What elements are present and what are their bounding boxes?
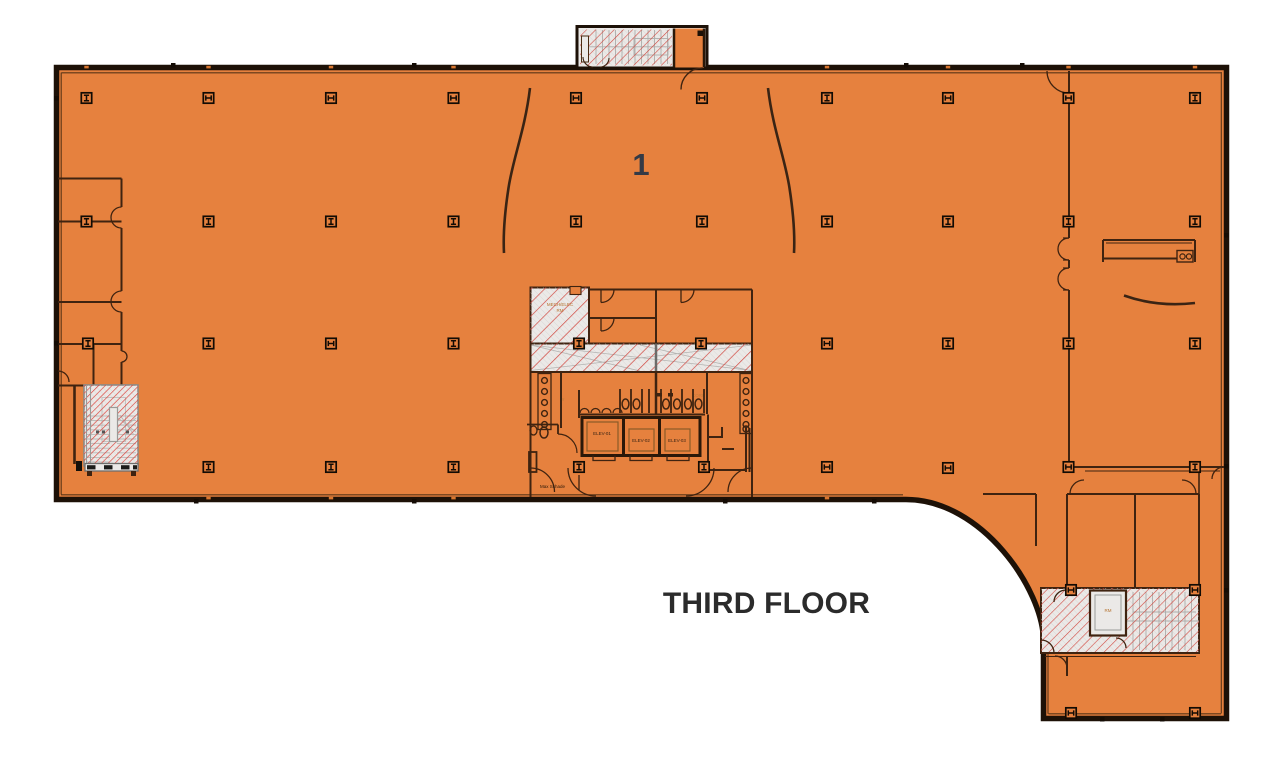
svg-text:ELEV-02: ELEV-02 [632, 438, 650, 443]
svg-text:Max Schade: Max Schade [540, 484, 566, 489]
svg-text:ELEV-01: ELEV-01 [593, 431, 611, 436]
svg-text:RM: RM [557, 308, 564, 313]
svg-text:1: 1 [632, 147, 649, 182]
svg-text:THIRD FLOOR: THIRD FLOOR [663, 587, 870, 620]
svg-text:RM: RM [1105, 608, 1112, 613]
svg-text:ELEV-03: ELEV-03 [668, 438, 686, 443]
svg-text:MECH/ELEC: MECH/ELEC [547, 302, 574, 307]
